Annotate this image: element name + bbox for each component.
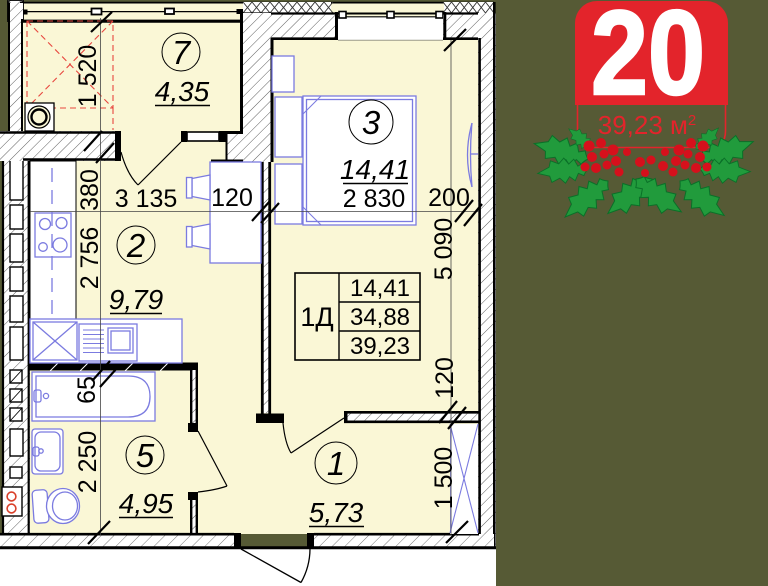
svg-text:20: 20 (591, 0, 705, 120)
svg-text:7: 7 (172, 34, 192, 71)
svg-text:34,88: 34,88 (350, 304, 410, 331)
svg-text:4,95: 4,95 (119, 488, 174, 519)
svg-text:39,23 м2: 39,23 м2 (598, 110, 697, 140)
svg-text:2 830: 2 830 (343, 185, 406, 213)
svg-text:2 756: 2 756 (76, 227, 104, 290)
svg-text:2 250: 2 250 (74, 431, 102, 494)
svg-text:2: 2 (126, 227, 145, 264)
svg-text:4,35: 4,35 (155, 76, 210, 107)
svg-text:14,41: 14,41 (350, 275, 410, 302)
svg-text:1 500: 1 500 (430, 447, 458, 510)
svg-text:3: 3 (362, 104, 381, 141)
svg-text:14,41: 14,41 (340, 154, 410, 185)
svg-text:120: 120 (211, 184, 253, 212)
svg-text:120: 120 (431, 357, 459, 399)
svg-text:1 520: 1 520 (74, 45, 102, 108)
svg-text:5 090: 5 090 (430, 218, 458, 281)
svg-text:1: 1 (327, 445, 345, 482)
svg-text:3 135: 3 135 (115, 185, 178, 213)
svg-text:39,23: 39,23 (350, 333, 410, 360)
svg-text:65: 65 (73, 376, 101, 404)
svg-text:9,79: 9,79 (109, 284, 164, 315)
svg-text:1Д: 1Д (300, 302, 333, 332)
svg-text:5: 5 (136, 437, 155, 474)
svg-text:380: 380 (76, 169, 104, 211)
svg-text:200: 200 (428, 184, 470, 212)
svg-text:5,73: 5,73 (309, 497, 364, 528)
